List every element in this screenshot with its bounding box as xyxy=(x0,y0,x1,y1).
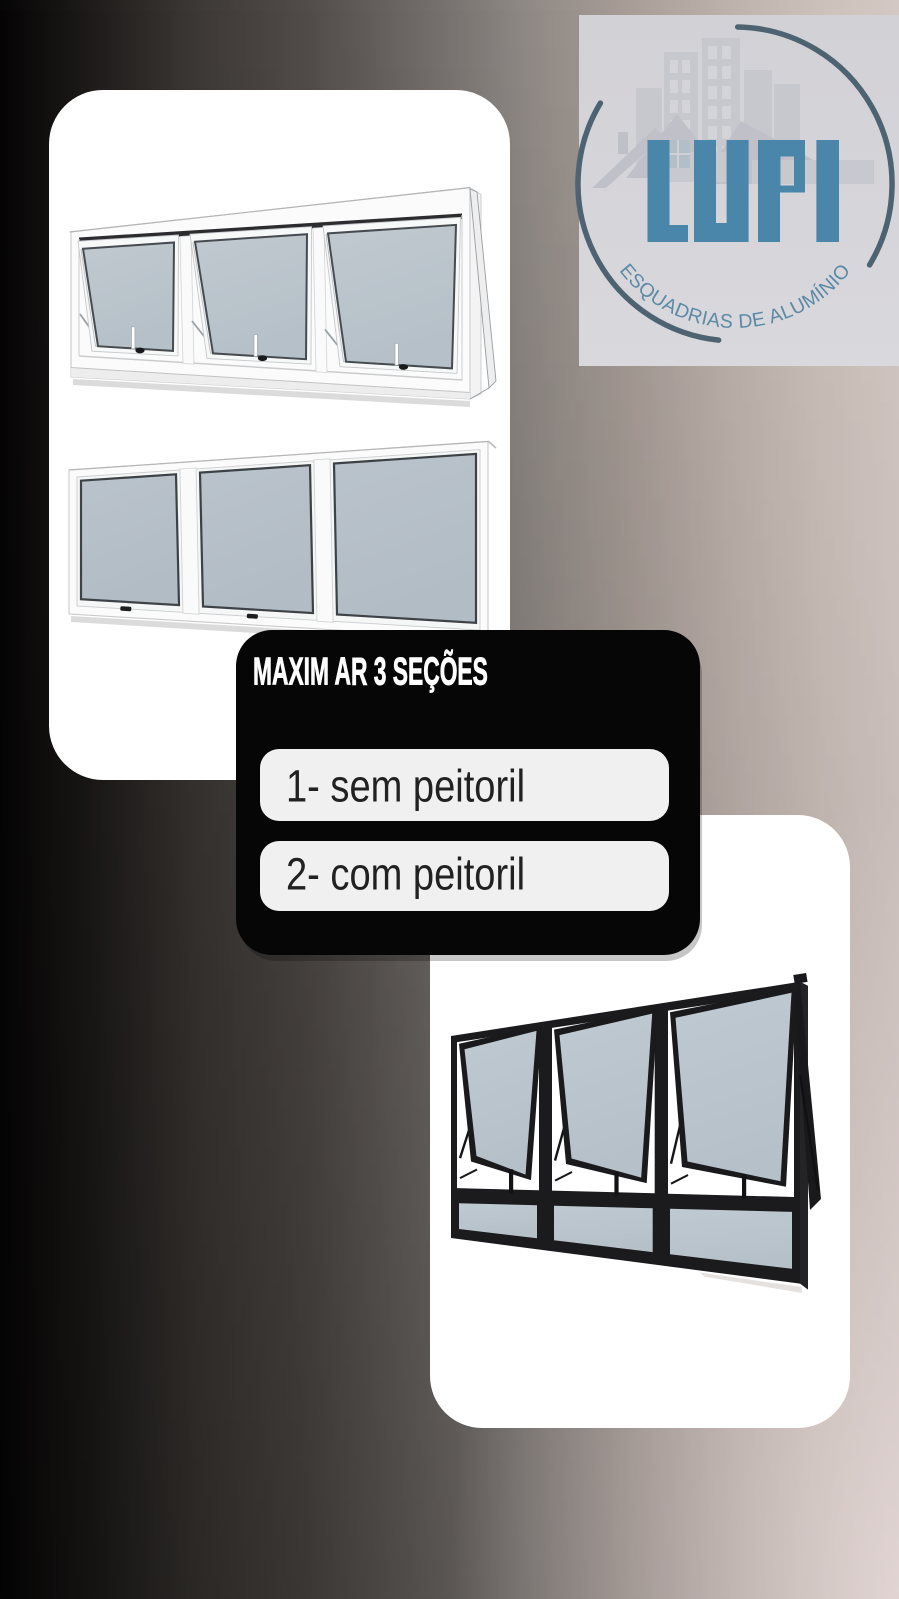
svg-text:2- com peitoril: 2- com peitoril xyxy=(286,848,525,899)
svg-text:1- sem peitoril: 1- sem peitoril xyxy=(286,760,525,811)
svg-text:MAXIM AR 3 SEÇÕES: MAXIM AR 3 SEÇÕES xyxy=(253,649,488,693)
